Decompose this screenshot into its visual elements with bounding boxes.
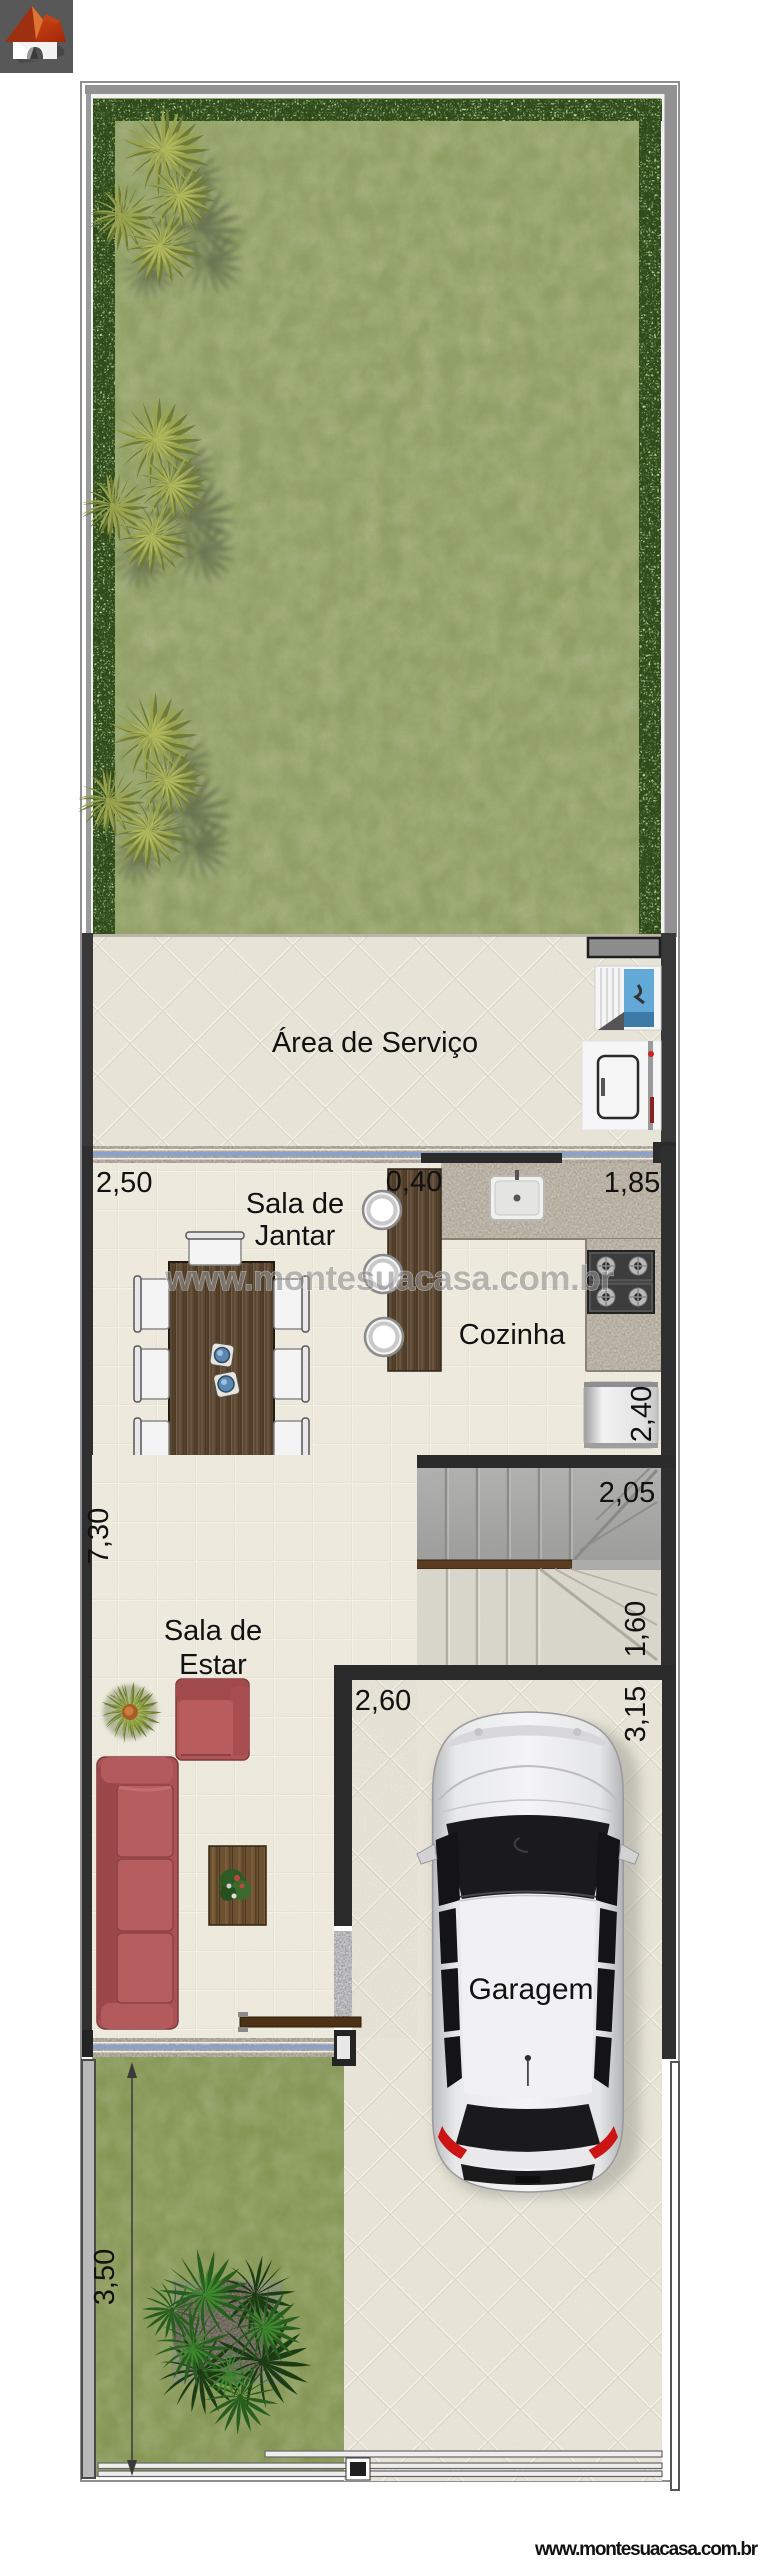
svg-text:2,05: 2,05: [599, 1477, 655, 1509]
svg-text:1,60: 1,60: [620, 1601, 652, 1657]
svg-text:Garagem: Garagem: [468, 1973, 593, 2006]
svg-text:2,60: 2,60: [355, 1685, 411, 1717]
svg-text:0,40: 0,40: [386, 1166, 442, 1198]
svg-text:www.montesuacasa.com.br: www.montesuacasa.com.br: [534, 2539, 759, 2560]
svg-text:3,50: 3,50: [89, 2249, 121, 2305]
svg-text:1,85: 1,85: [604, 1167, 660, 1199]
svg-text:Jantar: Jantar: [255, 1220, 336, 1252]
svg-text:2,40: 2,40: [626, 1386, 658, 1442]
svg-text:7,30: 7,30: [83, 1508, 115, 1564]
svg-text:Área de Serviço: Área de Serviço: [272, 1026, 478, 1059]
svg-text:Cozinha: Cozinha: [459, 1319, 566, 1351]
svg-text:Sala de: Sala de: [246, 1188, 344, 1220]
svg-text:Estar: Estar: [179, 1649, 247, 1681]
svg-text:www.montesuacasa.com.br: www.montesuacasa.com.br: [164, 1259, 614, 1298]
svg-text:2,50: 2,50: [96, 1167, 152, 1199]
svg-text:3,15: 3,15: [620, 1686, 652, 1742]
svg-text:Sala de: Sala de: [164, 1615, 262, 1647]
